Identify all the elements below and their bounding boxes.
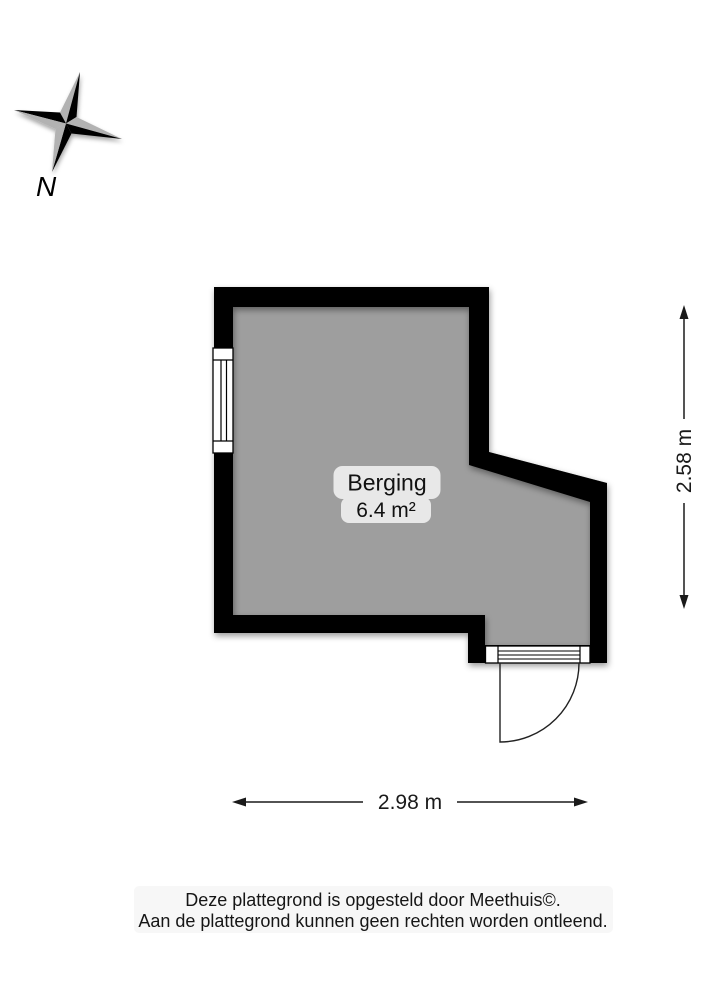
height-dimension: 2.58 m [673, 305, 696, 609]
north-label: N [36, 171, 57, 202]
door-swing-icon [500, 663, 579, 742]
arrowhead-left-icon [232, 798, 246, 807]
room-name-label: Berging [347, 470, 426, 496]
footer-disclaimer: Deze plattegrond is opgesteld door Meeth… [134, 886, 613, 933]
door-threshold-icon [486, 646, 591, 663]
arrowhead-down-icon [680, 595, 689, 609]
disclaimer-line-2: Aan de plattegrond kunnen geen rechten w… [138, 911, 607, 931]
floorplan-page: N [0, 0, 707, 1000]
width-dimension: 2.98 m [232, 791, 588, 814]
compass-rose-icon [14, 72, 122, 172]
floorplan-canvas: N [0, 0, 707, 1000]
room-berging: Berging 6.4 m² [213, 287, 607, 742]
height-dimension-label: 2.58 m [673, 429, 696, 493]
room-area-label: 6.4 m² [356, 499, 416, 522]
width-dimension-label: 2.98 m [378, 791, 442, 814]
window-icon [213, 348, 233, 453]
disclaimer-line-1: Deze plattegrond is opgesteld door Meeth… [185, 890, 561, 910]
arrowhead-up-icon [680, 305, 689, 319]
arrowhead-right-icon [574, 798, 588, 807]
